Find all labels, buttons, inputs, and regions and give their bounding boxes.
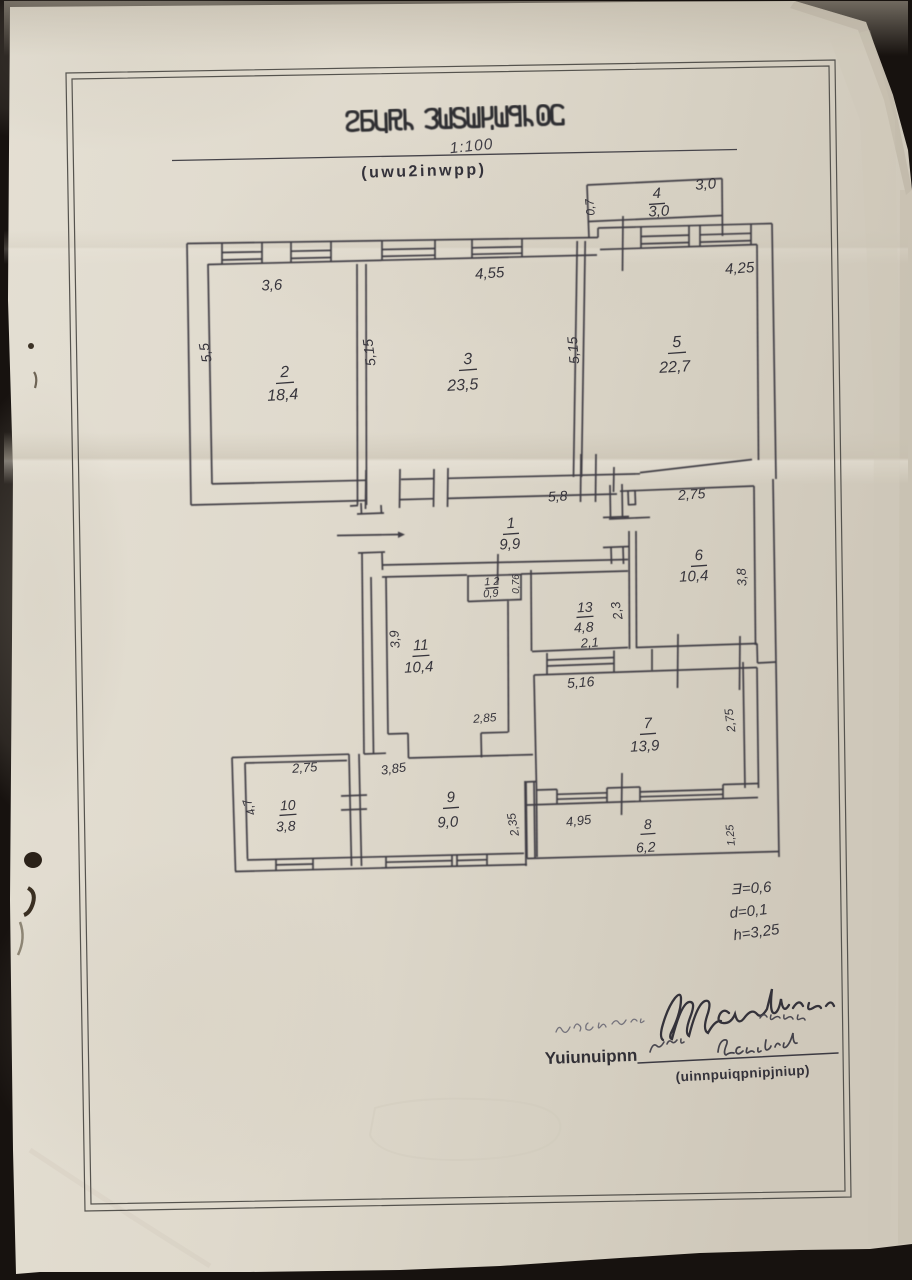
svg-text:13,9: 13,9	[630, 737, 661, 756]
svg-text:6,2: 6,2	[636, 838, 656, 855]
svg-text:4,55: 4,55	[475, 264, 506, 283]
svg-text:3: 3	[463, 351, 473, 368]
svg-text:Ǝ=0,6: Ǝ=0,6	[730, 879, 772, 899]
svg-text:1: 1	[506, 515, 515, 532]
svg-text:3,9: 3,9	[386, 630, 403, 649]
svg-text:2,75: 2,75	[722, 708, 739, 734]
svg-text:5,16: 5,16	[567, 673, 596, 691]
svg-text:0,76: 0,76	[511, 574, 522, 594]
svg-text:10,4: 10,4	[404, 658, 434, 677]
svg-text:1 2: 1 2	[484, 576, 500, 589]
svg-text:9: 9	[446, 789, 456, 806]
svg-text:Yuiunuipnn: Yuiunuipnn	[544, 1046, 637, 1068]
svg-text:9,0: 9,0	[437, 813, 459, 831]
svg-text:2,85: 2,85	[472, 710, 498, 726]
svg-text:5,5: 5,5	[195, 342, 214, 364]
svg-text:3,0: 3,0	[648, 202, 670, 220]
svg-text:3,8: 3,8	[734, 567, 750, 587]
svg-text:6: 6	[694, 547, 704, 564]
svg-text:(uwu2inwpp): (uwu2inwpp)	[361, 161, 487, 181]
svg-text:7: 7	[643, 715, 653, 732]
svg-text:0,9: 0,9	[483, 588, 499, 601]
svg-text:4,95: 4,95	[565, 812, 592, 830]
svg-text:2: 2	[279, 364, 290, 382]
svg-text:1,25: 1,25	[724, 823, 738, 846]
svg-text:22,7: 22,7	[658, 358, 692, 377]
svg-text:10: 10	[280, 797, 297, 814]
svg-text:2,75: 2,75	[291, 759, 319, 776]
svg-text:23,5: 23,5	[446, 376, 479, 395]
svg-text:10,4: 10,4	[679, 567, 709, 586]
svg-text:4: 4	[652, 185, 661, 202]
svg-text:3,8: 3,8	[276, 817, 296, 834]
svg-text:4,8: 4,8	[574, 618, 594, 635]
svg-text:2,75: 2,75	[677, 485, 707, 503]
svg-text:5,15: 5,15	[564, 336, 582, 365]
svg-text:3,0: 3,0	[694, 175, 717, 194]
svg-text:18,4: 18,4	[267, 386, 299, 405]
svg-text:4,25: 4,25	[725, 259, 756, 278]
svg-text:11: 11	[413, 637, 429, 655]
svg-text:0,7: 0,7	[582, 197, 598, 216]
svg-text:3,6: 3,6	[261, 276, 283, 294]
svg-text:9,9: 9,9	[499, 535, 521, 553]
svg-text:2,1: 2,1	[579, 634, 599, 650]
svg-text:5: 5	[672, 334, 682, 351]
svg-text:8: 8	[643, 816, 652, 832]
svg-text:13: 13	[577, 599, 594, 616]
svg-text:5,15: 5,15	[359, 338, 378, 367]
svg-text:5,8: 5,8	[547, 487, 568, 504]
